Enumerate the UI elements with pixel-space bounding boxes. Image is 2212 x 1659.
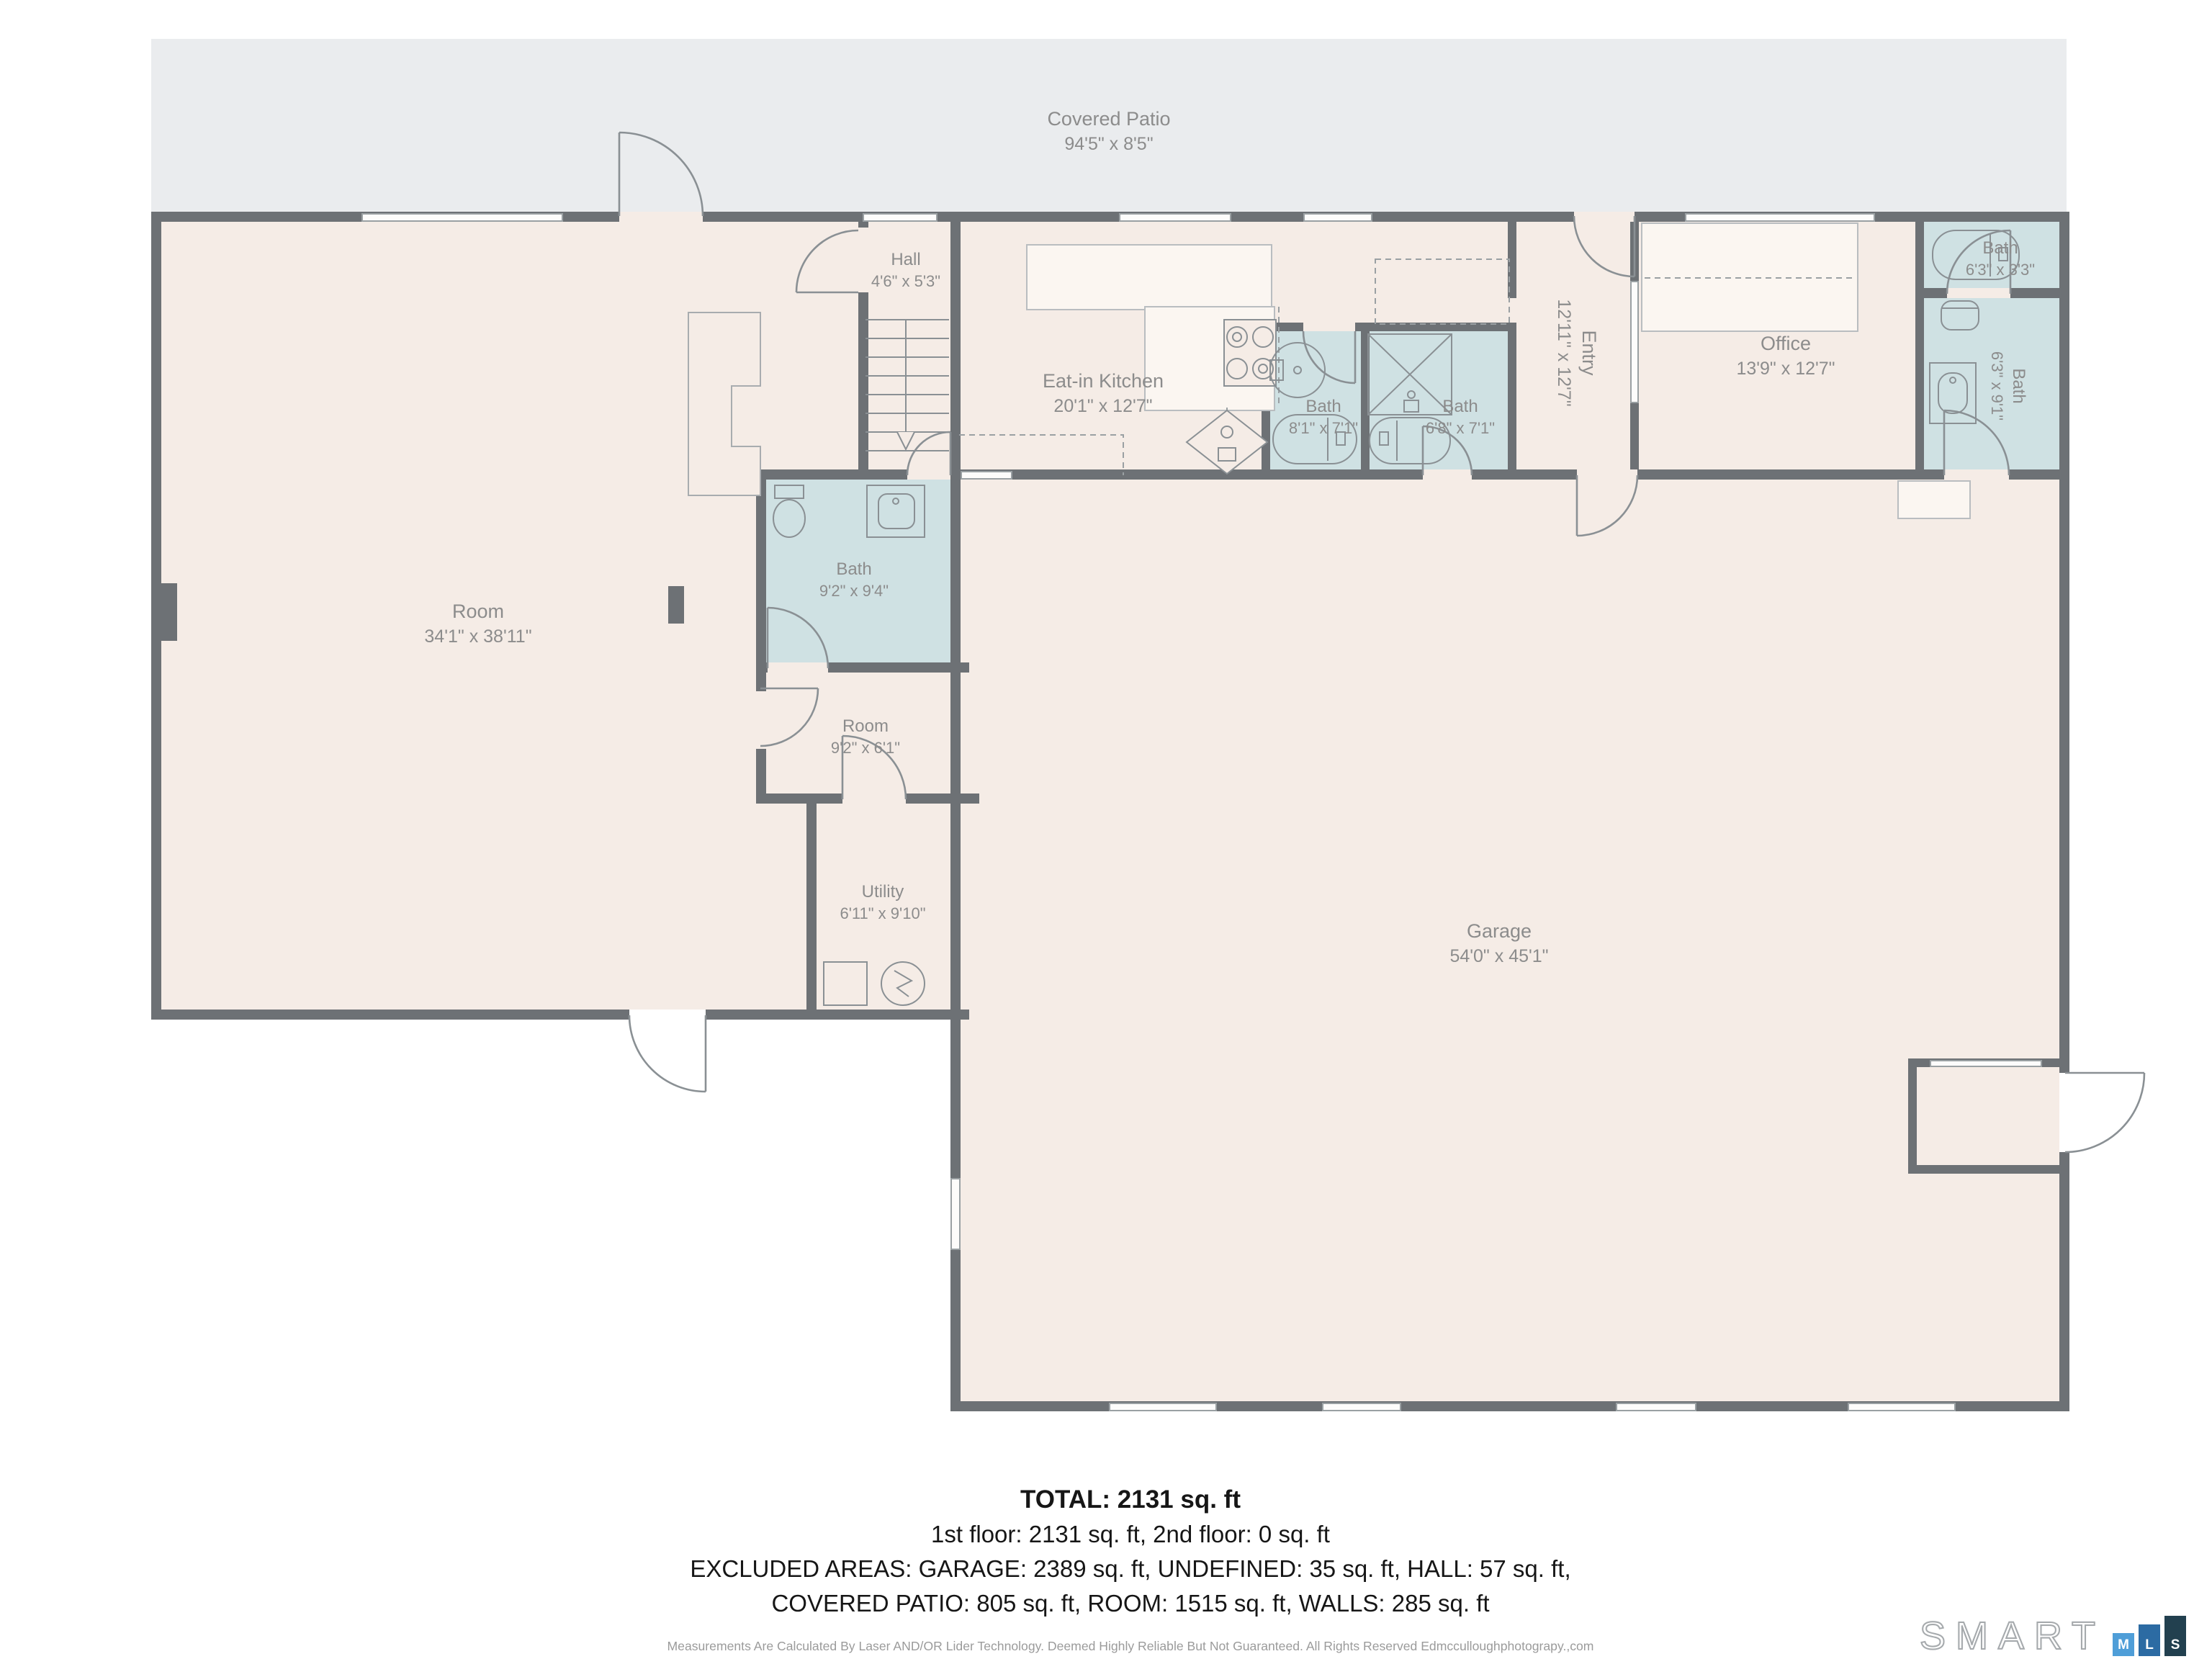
logo-word: SMART — [1920, 1617, 2105, 1656]
door-arc — [796, 230, 858, 292]
sink-icon — [867, 485, 925, 537]
logo-blocks: M L S — [2108, 1616, 2186, 1656]
label-room-small: Room 9'2" x 6'1" — [831, 716, 900, 759]
label-bath-c: Bath 6'3" x 3'3" — [1966, 238, 2035, 281]
toilet-icon — [775, 485, 804, 498]
door-arc — [768, 608, 828, 668]
label-bath-b: Bath 6'8" x 7'1" — [1426, 396, 1495, 439]
bath-mid-fixtures — [773, 485, 925, 537]
area-summary: TOTAL: 2131 sq. ft 1st floor: 2131 sq. f… — [0, 1485, 2212, 1626]
label-office: Office 13'9" x 12'7" — [1736, 331, 1835, 380]
door-arcs — [619, 132, 2144, 1152]
kitchen-fixtures — [959, 245, 1509, 475]
logo-block-s: S — [2164, 1616, 2186, 1656]
label-bath-d: Bath 6'3" x 9'1" — [1986, 351, 2029, 421]
door-arc — [1577, 475, 1637, 536]
label-covered-patio: Covered Patio 94'5" x 8'5" — [1047, 107, 1170, 156]
door-arc — [2065, 1073, 2144, 1152]
label-garage: Garage 54'0" x 45'1" — [1449, 919, 1548, 968]
office-box — [1898, 481, 1970, 518]
fixtures-overlay — [0, 0, 2212, 1659]
door-arc — [1574, 216, 1635, 276]
pantry-closet — [1375, 259, 1509, 324]
stairs — [866, 320, 949, 451]
door-arc — [629, 1015, 706, 1092]
pump-icon — [881, 962, 925, 1005]
total-line: TOTAL: 2131 sq. ft — [0, 1485, 2212, 1515]
utility-fixtures — [824, 962, 925, 1005]
excluded-line-2: COVERED PATIO: 805 sq. ft, ROOM: 1515 sq… — [0, 1591, 2212, 1619]
toilet-icon — [1941, 301, 1979, 330]
label-bath-a: Bath 8'1" x 7'1" — [1289, 396, 1358, 439]
floor-plan-page: Covered Patio 94'5" x 8'5" Room 34'1" x … — [0, 0, 2212, 1659]
label-room-left: Room 34'1" x 38'11" — [424, 599, 531, 648]
stove-icon — [1224, 320, 1276, 386]
label-entry: Entry 12'11" x 12'7" — [1552, 299, 1601, 406]
label-utility: Utility 6'11" x 9'10" — [840, 881, 925, 925]
kitchen-counter — [1027, 245, 1272, 310]
door-arc — [619, 132, 703, 216]
corner-sink-icon — [1187, 410, 1267, 474]
door-arc — [907, 432, 950, 475]
floors-line: 1st floor: 2131 sq. ft, 2nd floor: 0 sq.… — [0, 1522, 2212, 1550]
disclaimer-text: Measurements Are Calculated By Laser AND… — [0, 1639, 2212, 1653]
logo-block-l: L — [2139, 1624, 2160, 1656]
label-eat-in-kitchen: Eat-in Kitchen 20'1" x 12'7" — [1043, 369, 1164, 418]
built-in-nook — [688, 313, 760, 495]
label-bath-mid: Bath 9'2" x 9'4" — [819, 559, 889, 602]
door-arc — [1303, 331, 1355, 383]
excluded-line-1: EXCLUDED AREAS: GARAGE: 2389 sq. ft, UND… — [0, 1557, 2212, 1584]
label-hall: Hall 4'6" x 5'3" — [871, 249, 940, 292]
logo-block-m: M — [2113, 1633, 2134, 1656]
smart-mls-logo: SMART M L S — [1920, 1616, 2186, 1656]
appliance-icon — [824, 962, 867, 1005]
door-arc — [760, 688, 818, 746]
bath-d-fixtures — [1930, 301, 1979, 423]
